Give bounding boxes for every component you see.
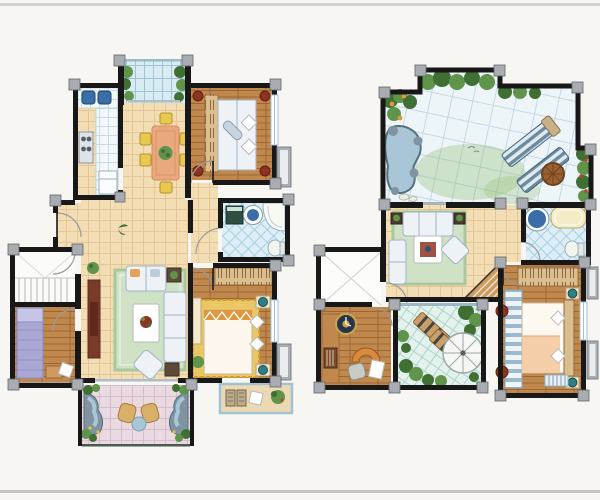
coffee-table xyxy=(414,236,442,263)
bottom-rule xyxy=(0,490,600,493)
bedroom-2 xyxy=(191,88,272,183)
two-seat-sofa xyxy=(126,266,166,291)
master-bedroom-upper xyxy=(496,265,581,393)
balcony-slider xyxy=(128,100,180,103)
sink-basin-right xyxy=(98,91,111,104)
study xyxy=(321,307,392,385)
north-balcony xyxy=(118,59,190,103)
round-table xyxy=(132,417,146,431)
bedroom-plant xyxy=(192,356,204,368)
dressing-mirror xyxy=(193,298,201,344)
dresser-hatched xyxy=(518,268,578,286)
cushion xyxy=(249,391,263,405)
top-rule xyxy=(0,3,600,6)
sofa-row xyxy=(403,212,453,236)
coffee-table xyxy=(133,304,159,342)
floor-plan-illustration xyxy=(0,0,600,500)
stair-hall xyxy=(15,252,75,305)
bedroom-3 xyxy=(15,307,75,388)
wall-clock xyxy=(336,314,356,334)
garden-balcony xyxy=(81,379,191,447)
side-table xyxy=(165,363,179,376)
terrace-slider xyxy=(423,202,446,205)
open-book xyxy=(368,360,384,379)
bathroom-upper xyxy=(521,207,586,261)
stove xyxy=(79,132,93,163)
folding-chair xyxy=(226,390,235,406)
round-basin xyxy=(527,209,547,229)
toilet xyxy=(565,241,579,257)
parasol-umbrella xyxy=(443,333,483,373)
terrace-round-table xyxy=(542,163,564,185)
folding-chair xyxy=(237,390,246,406)
living-plant xyxy=(87,262,99,274)
sun-room xyxy=(397,303,483,387)
pillow-band xyxy=(17,308,43,322)
fridge xyxy=(99,171,117,194)
headboard xyxy=(564,300,574,376)
floor-plan-card xyxy=(0,0,600,500)
tv xyxy=(90,302,98,336)
striped-rug xyxy=(545,375,568,386)
kitchen xyxy=(78,88,118,197)
sunroom-glazing xyxy=(398,303,481,306)
master-bedroom-lower xyxy=(191,268,272,378)
balcony-slider xyxy=(95,379,178,382)
sink-basin-left xyxy=(82,91,95,104)
side-sofa xyxy=(389,240,406,284)
master-balcony xyxy=(220,384,292,413)
table-centerpiece-plant xyxy=(159,146,173,160)
dresser-hatched xyxy=(215,268,272,285)
l-sofa xyxy=(164,292,186,362)
